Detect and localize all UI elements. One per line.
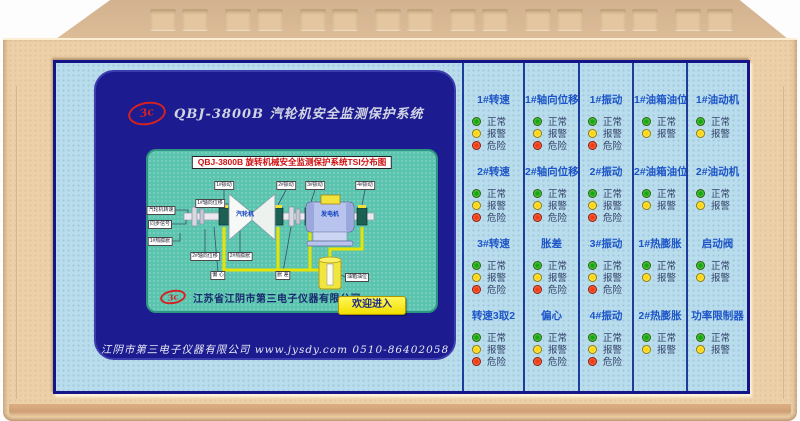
sensor-tag: 偏 心: [210, 271, 225, 280]
indicator-group-title: 1#轴向位移: [525, 93, 578, 107]
company-logo-icon: 3c: [159, 288, 187, 306]
enter-button[interactable]: 欢迎进入: [338, 296, 406, 315]
vent-slot-icon: [707, 9, 733, 31]
indicator-group-title: 4#振动: [580, 309, 632, 323]
indicator-group: 4#振动正常报警危险: [580, 309, 632, 381]
indicator-group-title: 2#轴向位移: [525, 165, 578, 179]
led-row: 报警: [642, 343, 686, 355]
led-row: 危险: [472, 211, 523, 223]
indicator-group-title: 胀差: [525, 237, 578, 251]
indicator-group-title: 1#油动机: [688, 93, 747, 107]
indicator-group: 1#热膨胀正常报警: [634, 237, 686, 309]
brand-logo-icon: 3c: [126, 99, 167, 128]
company-name: 江苏省江阴市第三电子仪器有限公司: [193, 290, 361, 305]
vent-slot-icon: [332, 9, 358, 31]
mimic-panel: QBJ-3800B 旋转机械安全监测保护系统TSI分布图: [146, 149, 438, 313]
normal-led-icon: [696, 189, 705, 198]
led-label: 危险: [487, 138, 506, 152]
indicator-group: 2#油动机正常报警: [688, 165, 747, 237]
alarm-led-icon: [533, 129, 542, 138]
danger-led-icon: [472, 141, 481, 150]
indicator-group: 3#振动正常报警危险: [580, 237, 632, 309]
vent-slot-icon: [632, 9, 658, 31]
panel-column-2: 1#轴向位移正常报警危险2#轴向位移正常报警危险胀差正常报警危险偏心正常报警危险: [523, 63, 578, 391]
sensor-tag: 2#振动: [276, 181, 296, 190]
led-label: 危险: [548, 354, 567, 368]
led-label: 报警: [711, 126, 730, 140]
panel-column-5: 1#油动机正常报警2#油动机正常报警启动阀正常报警功率限制器正常报警: [686, 63, 747, 391]
screen-title: QBJ-3800B 汽轮机安全监测保护系统: [174, 103, 424, 122]
sensor-tag: 2#轴向位移: [190, 252, 220, 261]
led-row: 报警: [642, 127, 686, 139]
indicator-group-title: 2#转速: [464, 165, 523, 179]
alarm-led-icon: [642, 201, 651, 210]
indicator-group-title: 1#转速: [464, 93, 523, 107]
vent-slot-icon: [675, 9, 701, 31]
alarm-led-icon: [588, 201, 597, 210]
normal-led-icon: [642, 333, 651, 342]
alarm-led-icon: [533, 201, 542, 210]
led-row: 危险: [472, 139, 523, 151]
vent-slot-icon: [407, 9, 433, 31]
left-seam-line: [16, 86, 17, 399]
vent-slot-icon: [150, 9, 176, 31]
indicator-group: 3#转速正常报警危险: [464, 237, 523, 309]
indicator-group: 2#热膨胀正常报警: [634, 309, 686, 381]
led-row: 危险: [588, 283, 632, 295]
vent-slot-icon: [300, 9, 326, 31]
alarm-led-icon: [472, 201, 481, 210]
led-row: 报警: [642, 199, 686, 211]
normal-led-icon: [642, 117, 651, 126]
sensor-tag: 1#轴向位移: [195, 199, 225, 208]
vent-slot-icon: [375, 9, 401, 31]
led-row: 危险: [588, 139, 632, 151]
danger-led-icon: [472, 285, 481, 294]
device-chassis: 3c QBJ-3800B 汽轮机安全监测保护系统 QBJ-3800B 旋转机械安…: [0, 0, 800, 421]
sensor-tag: 4#振动: [355, 181, 375, 190]
led-label: 危险: [487, 210, 506, 224]
indicator-group: 2#转速正常报警危险: [464, 165, 523, 237]
vent-slot-icon: [600, 9, 626, 31]
indicator-group: 1#振动正常报警危险: [580, 93, 632, 165]
vent-slot-icon: [257, 9, 283, 31]
led-row: 危险: [533, 355, 578, 367]
indicator-group: 偏心正常报警危险: [525, 309, 578, 381]
indicator-group-title: 3#转速: [464, 237, 523, 251]
alarm-led-icon: [642, 273, 651, 282]
led-row: 危险: [472, 283, 523, 295]
vent-slot-icon: [225, 9, 251, 31]
alarm-led-icon: [696, 129, 705, 138]
led-row: 报警: [696, 199, 747, 211]
alarm-led-icon: [696, 345, 705, 354]
indicator-group-title: 2#油动机: [688, 165, 747, 179]
indicator-group: 1#转速正常报警危险: [464, 93, 523, 165]
screen-footer-contact: 江阴市第三电子仪器有限公司 www.jysdy.com 0510-8640205…: [96, 342, 454, 357]
indicator-group-title: 2#振动: [580, 165, 632, 179]
right-seam-line: [783, 86, 784, 399]
led-label: 危险: [487, 354, 506, 368]
alarm-led-icon: [533, 345, 542, 354]
generator-label: 发电机: [321, 212, 339, 219]
normal-led-icon: [588, 189, 597, 198]
normal-led-icon: [696, 333, 705, 342]
alarm-led-icon: [696, 201, 705, 210]
led-label: 危险: [603, 138, 622, 152]
alarm-led-icon: [588, 129, 597, 138]
indicator-panel: 1#转速正常报警危险2#转速正常报警危险3#转速正常报警危险转速3取2正常报警危…: [462, 63, 747, 391]
alarm-led-icon: [588, 345, 597, 354]
normal-led-icon: [642, 261, 651, 270]
led-row: 危险: [588, 355, 632, 367]
sensor-tag: 油箱油位: [345, 273, 369, 282]
indicator-group-title: 偏心: [525, 309, 578, 323]
led-row: 危险: [533, 283, 578, 295]
normal-led-icon: [472, 189, 481, 198]
indicator-group-title: 功率限制器: [688, 309, 747, 323]
tsi-diagram: 汽轮机 发电机 1#振动2#振动3#振动4#振动1#轴向位移汽轮机转速同步信号1…: [148, 169, 440, 293]
led-row: 危险: [533, 139, 578, 151]
indicator-group-title: 启动阀: [688, 237, 747, 251]
alarm-led-icon: [588, 273, 597, 282]
led-label: 危险: [603, 282, 622, 296]
alarm-led-icon: [642, 345, 651, 354]
chassis-bottom-bevel: [9, 404, 791, 417]
danger-led-icon: [588, 357, 597, 366]
indicator-group: 2#油箱油位正常报警: [634, 165, 686, 237]
indicator-group: 1#轴向位移正常报警危险: [525, 93, 578, 165]
indicator-group-title: 1#热膨胀: [634, 237, 686, 251]
alarm-led-icon: [472, 273, 481, 282]
indicator-group: 2#振动正常报警危险: [580, 165, 632, 237]
led-label: 危险: [603, 354, 622, 368]
sensor-tag: 胀 差: [275, 271, 290, 280]
turbine-label: 汽轮机: [236, 212, 254, 219]
normal-led-icon: [533, 333, 542, 342]
vent-slot-icon: [557, 9, 583, 31]
normal-led-icon: [588, 261, 597, 270]
led-label: 危险: [487, 282, 506, 296]
led-row: 危险: [588, 211, 632, 223]
indicator-group: 1#油箱油位正常报警: [634, 93, 686, 165]
led-label: 报警: [657, 126, 676, 140]
indicator-group: 1#油动机正常报警: [688, 93, 747, 165]
indicator-group-title: 2#油箱油位: [634, 165, 686, 179]
danger-led-icon: [472, 213, 481, 222]
vent-slot-icon: [182, 9, 208, 31]
led-label: 报警: [657, 198, 676, 212]
front-recess: 3c QBJ-3800B 汽轮机安全监测保护系统 QBJ-3800B 旋转机械安…: [53, 60, 750, 394]
normal-led-icon: [588, 117, 597, 126]
alarm-led-icon: [472, 345, 481, 354]
normal-led-icon: [642, 189, 651, 198]
led-row: 报警: [642, 271, 686, 283]
vent-slot-icon: [525, 9, 551, 31]
normal-led-icon: [472, 333, 481, 342]
panel-column-1: 1#转速正常报警危险2#转速正常报警危险3#转速正常报警危险转速3取2正常报警危…: [462, 63, 523, 391]
indicator-group-title: 1#油箱油位: [634, 93, 686, 107]
indicator-group: 2#轴向位移正常报警危险: [525, 165, 578, 237]
panel-column-4: 1#油箱油位正常报警2#油箱油位正常报警1#热膨胀正常报警2#热膨胀正常报警: [632, 63, 686, 391]
danger-led-icon: [472, 357, 481, 366]
led-row: 危险: [533, 211, 578, 223]
led-row: 报警: [696, 343, 747, 355]
alarm-led-icon: [696, 273, 705, 282]
vent-slot-icon: [482, 9, 508, 31]
mimic-banner-title: QBJ-3800B 旋转机械安全监测保护系统TSI分布图: [192, 156, 392, 169]
danger-led-icon: [533, 141, 542, 150]
normal-led-icon: [696, 117, 705, 126]
led-label: 报警: [657, 270, 676, 284]
led-label: 报警: [657, 342, 676, 356]
alarm-led-icon: [472, 129, 481, 138]
panel-column-3: 1#振动正常报警危险2#振动正常报警危险3#振动正常报警危险4#振动正常报警危险: [578, 63, 632, 391]
led-label: 危险: [548, 210, 567, 224]
led-row: 危险: [472, 355, 523, 367]
led-label: 报警: [711, 198, 730, 212]
company-row: 3c 江苏省江阴市第三电子仪器有限公司: [160, 287, 361, 307]
alarm-led-icon: [533, 273, 542, 282]
indicator-group: 功率限制器正常报警: [688, 309, 747, 381]
normal-led-icon: [533, 261, 542, 270]
indicator-group: 胀差正常报警危险: [525, 237, 578, 309]
led-label: 危险: [548, 138, 567, 152]
sensor-tag: 汽轮机转速: [146, 206, 175, 215]
sensor-tag: 2#热膨胀: [228, 252, 253, 261]
led-label: 报警: [711, 270, 730, 284]
led-row: 报警: [696, 271, 747, 283]
alarm-led-icon: [642, 129, 651, 138]
sensor-tag: 同步信号: [148, 220, 172, 229]
indicator-group-title: 2#热膨胀: [634, 309, 686, 323]
danger-led-icon: [588, 213, 597, 222]
led-row: 报警: [696, 127, 747, 139]
danger-led-icon: [588, 285, 597, 294]
led-label: 报警: [711, 342, 730, 356]
normal-led-icon: [696, 261, 705, 270]
danger-led-icon: [588, 141, 597, 150]
sensor-tag: 3#振动: [305, 181, 325, 190]
display-screen: 3c QBJ-3800B 汽轮机安全监测保护系统 QBJ-3800B 旋转机械安…: [94, 70, 456, 360]
indicator-group: 启动阀正常报警: [688, 237, 747, 309]
danger-led-icon: [533, 213, 542, 222]
danger-led-icon: [533, 285, 542, 294]
sensor-tag: 1#振动: [214, 181, 234, 190]
danger-led-icon: [533, 357, 542, 366]
indicator-group-title: 1#振动: [580, 93, 632, 107]
sensor-tag: 1#热膨胀: [148, 237, 173, 246]
normal-led-icon: [472, 117, 481, 126]
normal-led-icon: [472, 261, 481, 270]
vent-slot-icon: [450, 9, 476, 31]
indicator-group-title: 3#振动: [580, 237, 632, 251]
normal-led-icon: [533, 189, 542, 198]
indicator-group: 转速3取2正常报警危险: [464, 309, 523, 381]
normal-led-icon: [533, 117, 542, 126]
chassis-top-panel: [56, 0, 788, 39]
normal-led-icon: [588, 333, 597, 342]
led-label: 危险: [548, 282, 567, 296]
led-label: 危险: [603, 210, 622, 224]
indicator-group-title: 转速3取2: [464, 309, 523, 323]
